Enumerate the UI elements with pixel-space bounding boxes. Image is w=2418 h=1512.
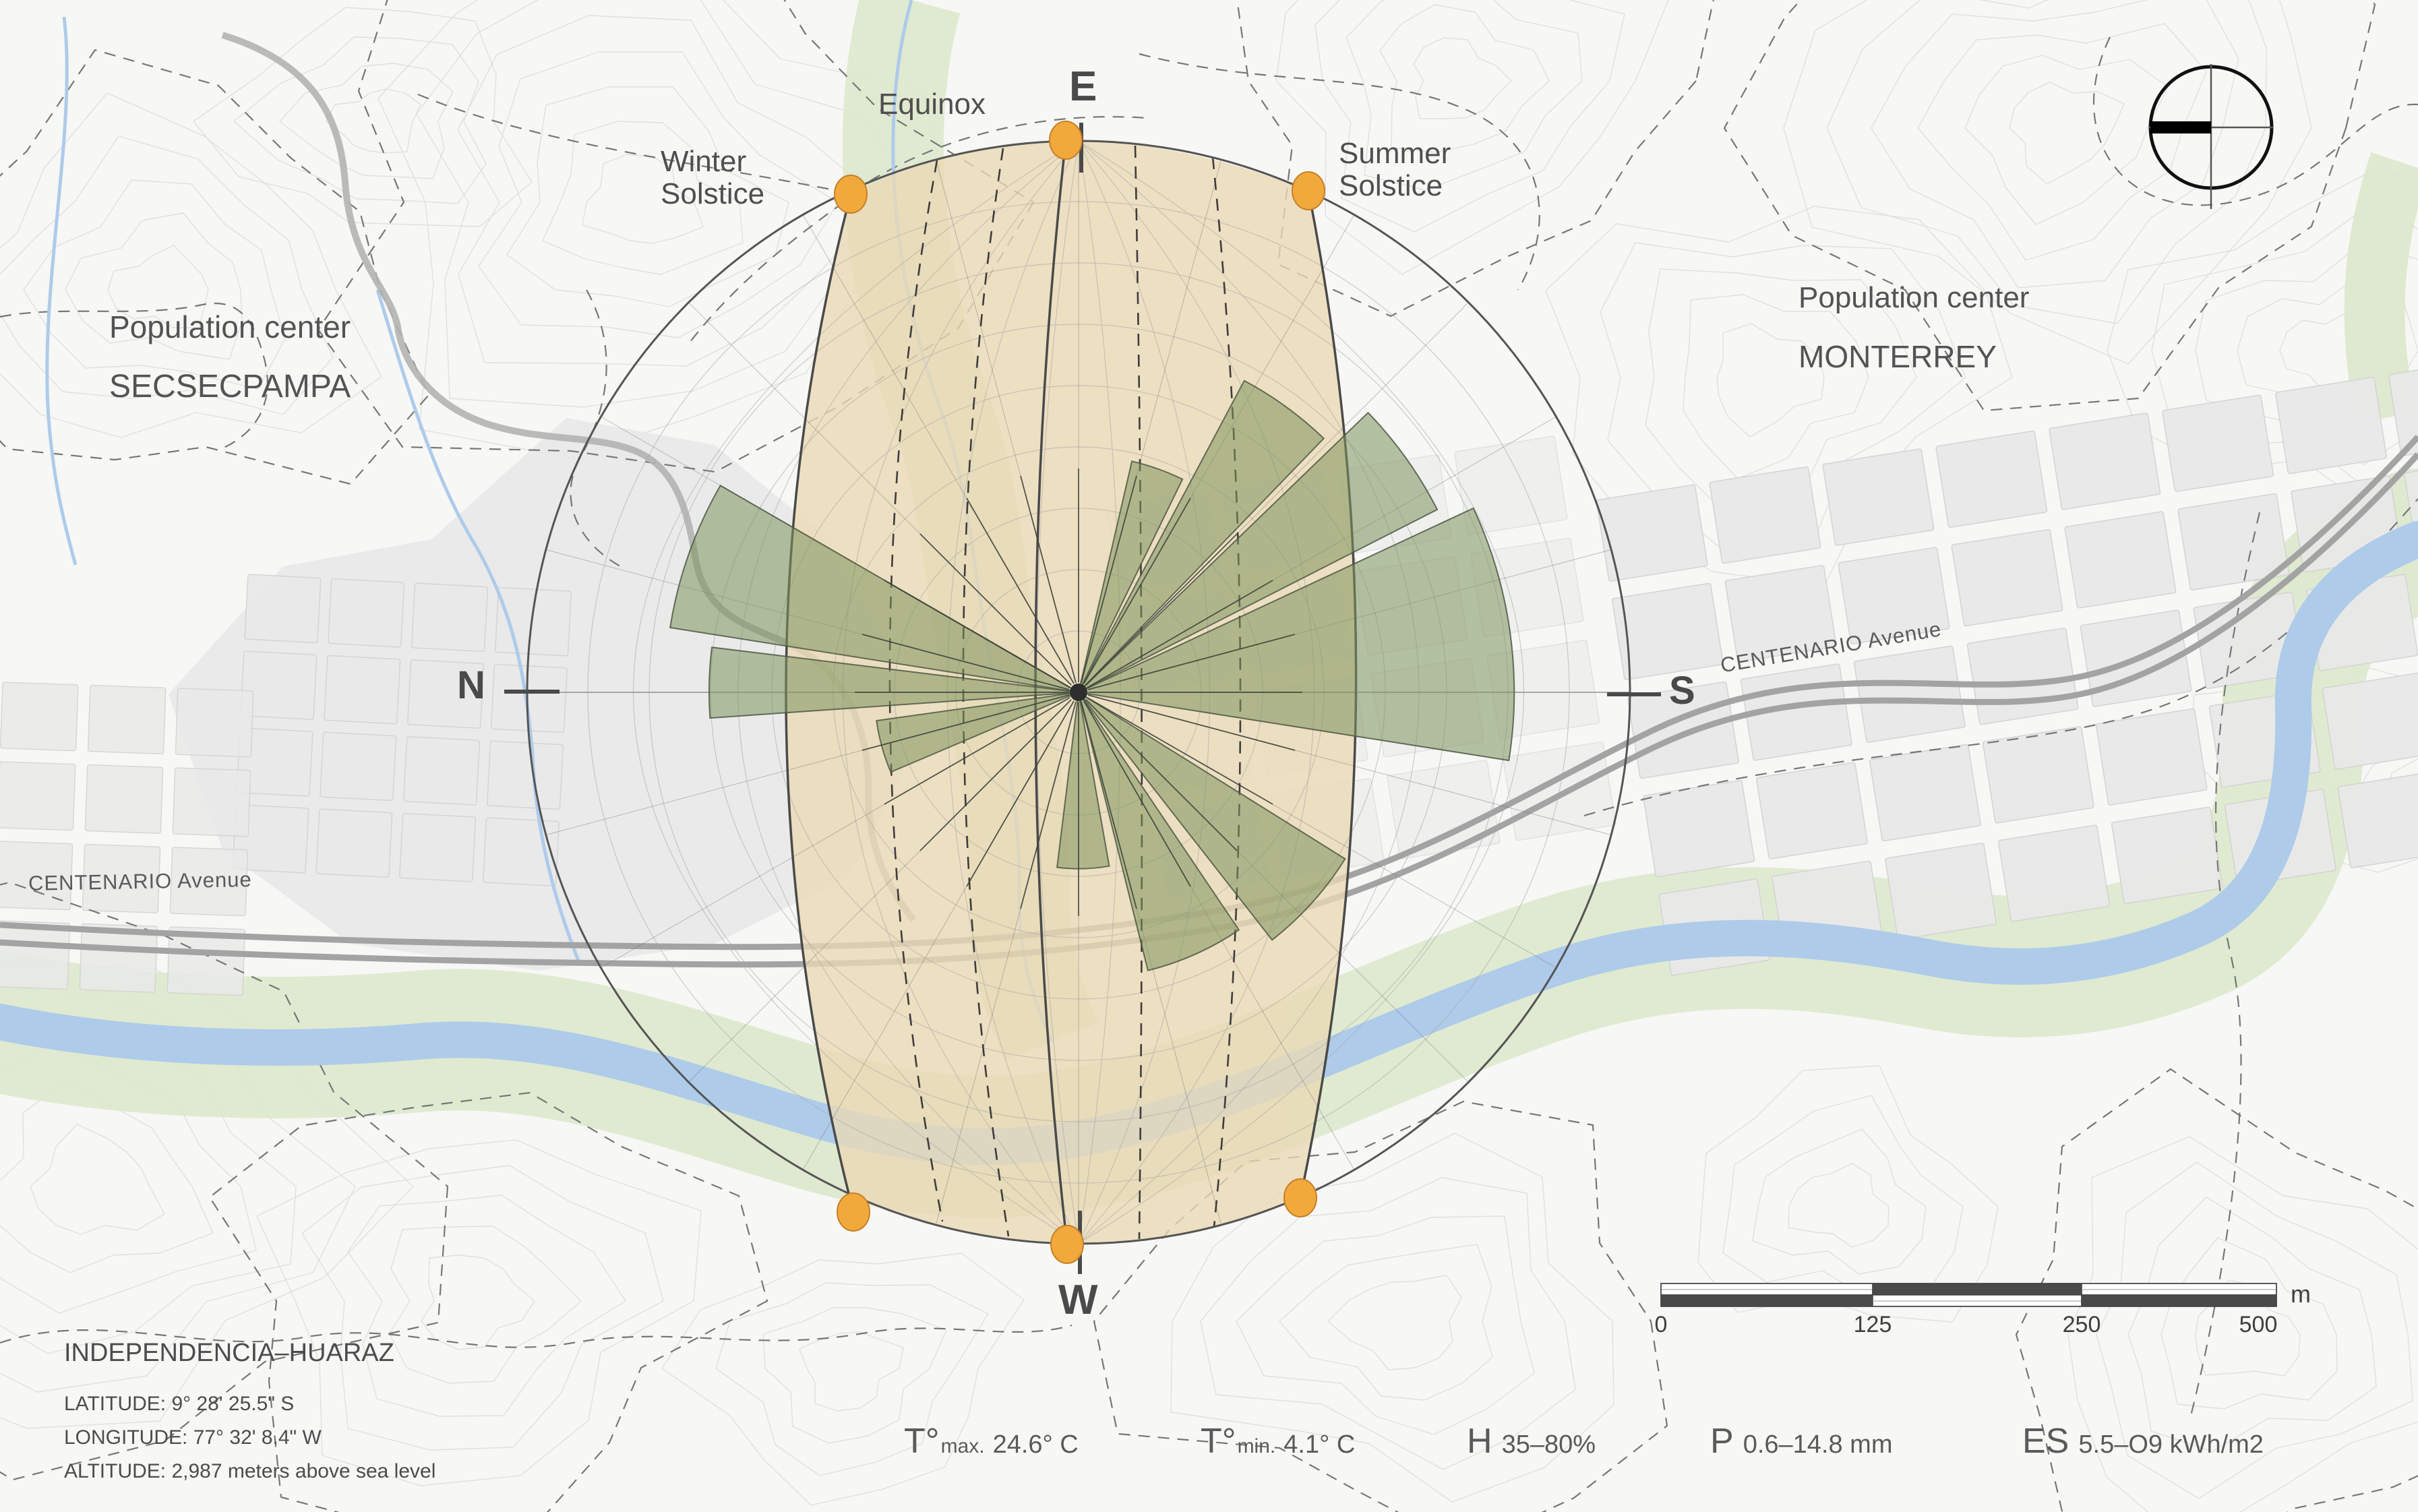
climate-item-1: T°min.4.1° C bbox=[1201, 1421, 1355, 1461]
location-longitude: LONGITUDE: 77° 32' 8.4" W bbox=[64, 1428, 322, 1448]
scale-tick-500: 500 bbox=[2239, 1313, 2278, 1336]
winter-solstice-label-2: Solstice bbox=[661, 179, 764, 209]
climate-value: 4.1° C bbox=[1283, 1430, 1355, 1459]
sun-marker bbox=[1284, 1179, 1317, 1217]
site-analysis-map: Equinox Winter Solstice Summer Solstice … bbox=[0, 0, 2418, 1512]
avenue-label-left: CENTENARIO Avenue bbox=[28, 869, 252, 894]
west-label: W bbox=[1058, 1279, 1098, 1321]
sun-marker bbox=[1051, 1226, 1083, 1263]
climate-symbol: H bbox=[1467, 1421, 1492, 1461]
equinox-label: Equinox bbox=[878, 90, 986, 119]
climate-value: 5.5–O9 kWh/m2 bbox=[2078, 1430, 2264, 1459]
climate-subscript: min. bbox=[1238, 1435, 1276, 1458]
location-altitude: ALTITUDE: 2,987 meters above sea level bbox=[64, 1461, 435, 1482]
map-canvas bbox=[0, 0, 2418, 1512]
scale-tick-125: 125 bbox=[1854, 1313, 1892, 1336]
population-center-1-name: SECSECPAMPA bbox=[109, 371, 351, 403]
scale-unit: m bbox=[2291, 1282, 2311, 1306]
climate-symbol: T° bbox=[904, 1421, 940, 1461]
climate-symbol: ES bbox=[2022, 1421, 2069, 1461]
population-center-2-label: Population center bbox=[1799, 283, 2029, 313]
climate-item-3: P0.6–14.8 mm bbox=[1710, 1421, 1892, 1461]
summer-solstice-label-2: Solstice bbox=[1339, 171, 1443, 201]
scale-bar bbox=[1661, 1283, 2276, 1306]
climate-item-2: H35–80% bbox=[1467, 1421, 1596, 1461]
population-center-1-label: Population center bbox=[109, 311, 351, 342]
summer-solstice-label-1: Summer bbox=[1339, 139, 1451, 169]
location-latitude: LATITUDE: 9° 28' 25.5" S bbox=[64, 1394, 294, 1414]
north-label: N bbox=[457, 666, 485, 705]
sun-marker bbox=[1292, 172, 1325, 210]
climate-value: 35–80% bbox=[1502, 1430, 1596, 1459]
climate-symbol: P bbox=[1710, 1421, 1734, 1461]
location-title: INDEPENDENCIA–HUARAZ bbox=[64, 1340, 394, 1366]
climate-item-4: ES5.5–O9 kWh/m2 bbox=[2022, 1421, 2264, 1461]
climate-symbol: T° bbox=[1201, 1421, 1236, 1461]
winter-solstice-label-1: Winter bbox=[661, 147, 746, 177]
scale-tick-250: 250 bbox=[2063, 1313, 2101, 1336]
climate-item-0: T°max.24.6° C bbox=[904, 1421, 1079, 1461]
east-label: E bbox=[1069, 66, 1097, 108]
sun-marker bbox=[1050, 121, 1082, 159]
climate-subscript: max. bbox=[941, 1435, 985, 1458]
scale-tick-0: 0 bbox=[1655, 1313, 1668, 1336]
sun-marker bbox=[837, 1193, 870, 1231]
sun-marker bbox=[835, 175, 867, 213]
south-label: S bbox=[1669, 671, 1695, 710]
climate-value: 0.6–14.8 mm bbox=[1743, 1430, 1893, 1459]
population-center-2-name: MONTERREY bbox=[1799, 341, 1997, 372]
diagram-center bbox=[1070, 684, 1087, 701]
climate-value: 24.6° C bbox=[993, 1430, 1079, 1459]
